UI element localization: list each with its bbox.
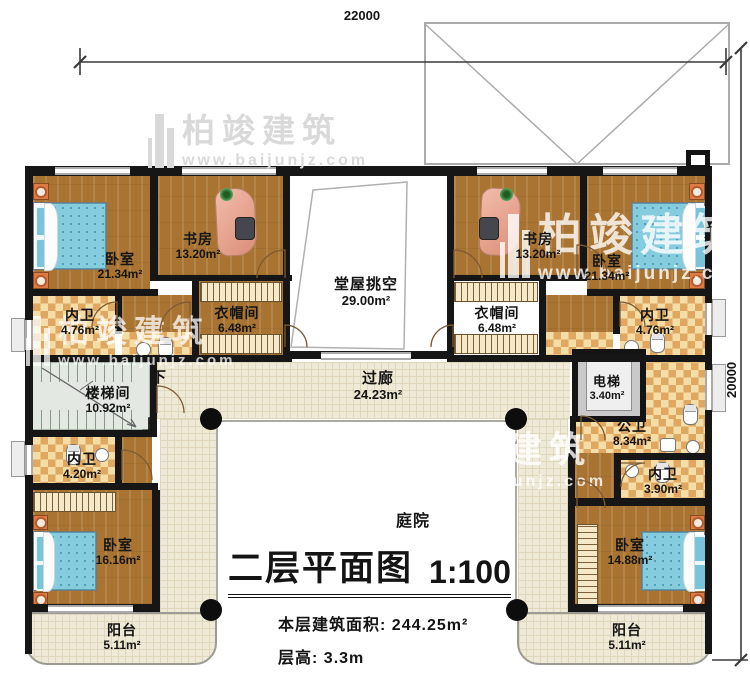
room-area: 4.76m² — [61, 324, 99, 337]
wall — [25, 355, 292, 362]
wardrobe — [454, 282, 538, 302]
room-area: 3.40m² — [590, 390, 625, 402]
room-label-study-r: 书房13.20m² — [516, 232, 561, 261]
floor-area-label: 本层建筑面积: — [278, 617, 386, 634]
wall — [705, 612, 712, 654]
floor-height-value: 3.3m — [324, 650, 364, 667]
wall — [25, 289, 158, 296]
wall — [539, 281, 546, 362]
room-label-bath-tl: 内卫4.76m² — [61, 308, 99, 337]
window — [603, 167, 677, 175]
room-label-stairwell: 楼梯间10.92m² — [86, 386, 131, 415]
room-label-bath-tr: 内卫4.76m² — [636, 308, 674, 337]
nightstand — [33, 272, 49, 289]
room-name: 衣帽间 — [475, 306, 520, 322]
room-name: 卧室 — [98, 252, 143, 268]
wall — [283, 176, 290, 360]
plant — [220, 188, 233, 201]
wall — [614, 453, 712, 460]
room-name: 书房 — [516, 232, 561, 248]
room-name: 过廊 — [354, 371, 402, 388]
ac-platform — [11, 441, 25, 477]
floor-height-label: 层高: — [278, 650, 318, 667]
column — [200, 408, 222, 430]
window — [55, 167, 130, 175]
room-label-public-bath: 公卫8.34m² — [613, 419, 651, 448]
window — [48, 605, 133, 613]
sink — [625, 464, 639, 478]
title-block: 二层平面图 1:100 本层建筑面积: 244.25m² 层高: 3.3m — [228, 540, 511, 677]
window — [477, 167, 547, 175]
blanket — [683, 532, 695, 592]
office-chair — [235, 217, 255, 240]
blanket — [682, 203, 696, 271]
wardrobe — [200, 334, 282, 354]
wall — [447, 176, 454, 360]
window — [705, 370, 713, 410]
room-name: 卧室 — [585, 254, 630, 270]
desk-group — [478, 186, 518, 256]
room-name: 阳台 — [608, 623, 645, 639]
desk-group — [216, 186, 256, 256]
room-name: 阳台 — [103, 623, 140, 639]
void-floor — [290, 176, 447, 351]
room-name: 衣帽间 — [215, 306, 260, 322]
wall — [575, 498, 712, 506]
watermark-brand: 柏竣建筑 — [182, 114, 368, 147]
plan-title-row: 二层平面图 1:100 — [228, 540, 511, 598]
nightstand — [33, 515, 48, 530]
room-area: 4.20m² — [63, 468, 101, 481]
room-name: 内卫 — [644, 467, 682, 483]
office-chair — [479, 217, 499, 240]
room-area: 21.34m² — [98, 268, 143, 281]
wall — [25, 176, 33, 612]
room-label-balcony-r: 阳台5.11m² — [608, 623, 645, 652]
room-area: 24.23m² — [354, 388, 402, 403]
room-name: 卧室 — [96, 538, 141, 554]
window — [25, 320, 33, 350]
floor-area-value: 244.25m² — [392, 617, 469, 634]
wardrobe — [33, 492, 116, 512]
window — [321, 352, 411, 360]
chimney — [686, 150, 710, 170]
wall — [570, 416, 576, 460]
room-name: 楼梯间 — [86, 386, 131, 402]
stair-treads — [32, 362, 132, 382]
room-label-cloak-r: 衣帽间6.48m² — [475, 306, 520, 335]
corridor-tile-floor — [160, 419, 216, 612]
watermark-top: 柏竣建筑 www.baijunjz.com — [148, 114, 368, 168]
nightstand — [690, 515, 705, 530]
sink — [686, 440, 700, 454]
wood-floor — [575, 453, 614, 503]
floor-plan-page: 柏竣建筑 www.baijunjz.com 柏竣建筑 www.baijunjz.… — [0, 0, 750, 679]
wall — [25, 483, 158, 490]
room-label-courtyard: 庭院 — [396, 513, 430, 531]
mattress — [632, 203, 688, 269]
room-area: 29.00m² — [334, 294, 398, 309]
room-area: 14.88m² — [608, 554, 653, 567]
blanket — [43, 532, 55, 592]
room-label-bath-br: 内卫3.90m² — [644, 467, 682, 496]
column — [200, 599, 222, 621]
room-name: 庭院 — [396, 513, 430, 531]
room-name: 内卫 — [636, 308, 674, 324]
column — [505, 408, 527, 430]
bed — [33, 515, 97, 607]
wall — [152, 275, 292, 281]
brand-logo-icon — [148, 114, 174, 168]
wall — [568, 453, 575, 612]
room-area: 5.11m² — [103, 639, 140, 652]
room-name: 电梯 — [590, 375, 625, 390]
room-label-bedroom-tl: 卧室21.34m² — [98, 252, 143, 281]
wall — [447, 355, 712, 362]
nightstand — [689, 183, 705, 200]
wall — [25, 430, 157, 437]
blanket — [44, 203, 58, 271]
wall — [150, 176, 158, 281]
ac-platform — [11, 318, 25, 352]
room-name: 内卫 — [63, 452, 101, 468]
room-area: 4.76m² — [636, 324, 674, 337]
bed — [33, 183, 107, 289]
wardrobe — [454, 334, 538, 354]
roof-outline — [424, 22, 730, 165]
wall — [447, 275, 587, 281]
bed — [631, 183, 705, 289]
room-label-bedroom-bl: 卧室16.16m² — [96, 538, 141, 567]
room-area: 5.11m² — [608, 639, 645, 652]
bath-tile-floor — [122, 332, 192, 356]
room-area: 16.16m² — [96, 554, 141, 567]
room-area: 13.20m² — [176, 248, 221, 261]
room-label-bedroom-tr: 卧室21.34m² — [585, 254, 630, 283]
window — [705, 303, 713, 335]
stair-up-label: 上 — [142, 414, 157, 435]
wall — [587, 289, 712, 296]
window — [25, 445, 33, 475]
room-area: 6.48m² — [215, 322, 260, 335]
wardrobe — [200, 282, 282, 302]
room-label-cloak-l: 衣帽间6.48m² — [215, 306, 260, 335]
window — [182, 167, 276, 175]
plan-title: 二层平面图 — [228, 540, 413, 591]
wall — [192, 281, 199, 362]
wall — [115, 296, 122, 334]
room-label-bedroom-br: 卧室14.88m² — [608, 538, 653, 567]
sink — [660, 438, 676, 452]
room-area: 10.92m² — [86, 402, 131, 415]
wardrobe — [577, 524, 598, 606]
room-label-bath-bl: 内卫4.20m² — [63, 452, 101, 481]
room-label-study-l: 书房13.20m² — [176, 232, 221, 261]
wall — [152, 490, 160, 612]
room-name: 内卫 — [61, 308, 99, 324]
room-area: 8.34m² — [613, 435, 651, 448]
room-name: 公卫 — [613, 419, 651, 435]
floor-area-row: 本层建筑面积: 244.25m² — [278, 611, 511, 635]
wall — [613, 296, 620, 334]
nightstand — [33, 183, 49, 200]
room-label-balcony-l: 阳台5.11m² — [103, 623, 140, 652]
wall — [25, 612, 32, 654]
room-label-elevator: 电梯3.40m² — [590, 375, 625, 402]
room-area: 6.48m² — [475, 322, 520, 335]
plan-scale: 1:100 — [429, 554, 511, 591]
room-label-corridor: 过廊24.23m² — [354, 371, 402, 402]
toilet — [683, 404, 698, 425]
floor-height-row: 层高: 3.3m — [278, 644, 511, 668]
room-area: 13.20m² — [516, 248, 561, 261]
room-area: 21.34m² — [585, 270, 630, 283]
nightstand — [689, 272, 705, 289]
dimension-right: 20000 — [724, 303, 739, 398]
window — [598, 605, 683, 613]
plant — [500, 188, 513, 201]
stair-down-label: 下 — [151, 366, 166, 387]
room-name: 书房 — [176, 232, 221, 248]
room-name: 卧室 — [608, 538, 653, 554]
room-name: 堂屋挑空 — [334, 277, 398, 294]
mattress — [48, 532, 96, 590]
dimension-top: 22000 — [336, 8, 388, 23]
room-label-hall-void: 堂屋挑空29.00m² — [334, 277, 398, 308]
room-area: 3.90m² — [644, 483, 682, 496]
corridor-tile-floor — [518, 419, 568, 612]
